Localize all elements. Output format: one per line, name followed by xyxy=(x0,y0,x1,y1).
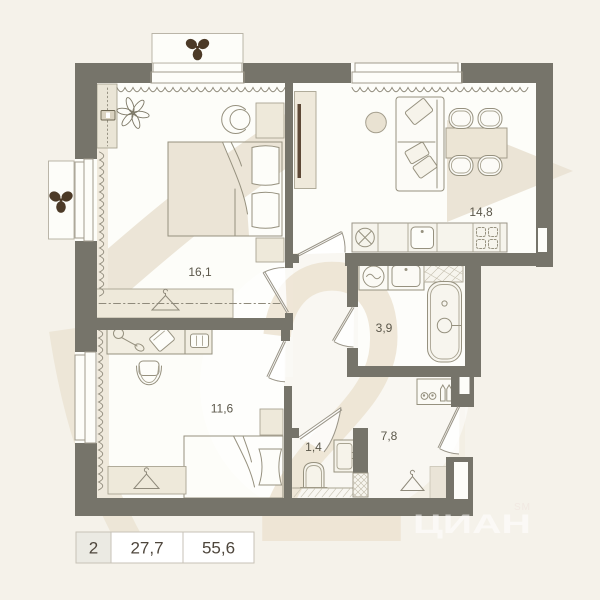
svg-text:SM: SM xyxy=(514,502,531,513)
svg-text:1,4: 1,4 xyxy=(305,440,322,454)
svg-text:7,8: 7,8 xyxy=(381,429,398,443)
svg-text:55,6: 55,6 xyxy=(202,539,235,558)
svg-text:2: 2 xyxy=(89,539,98,558)
svg-text:14,8: 14,8 xyxy=(469,205,493,219)
svg-text:16,1: 16,1 xyxy=(188,265,212,279)
svg-text:27,7: 27,7 xyxy=(130,539,163,558)
svg-text:ЦИАН: ЦИАН xyxy=(413,509,531,539)
svg-text:3,9: 3,9 xyxy=(376,321,393,335)
svg-text:11,6: 11,6 xyxy=(211,402,234,416)
